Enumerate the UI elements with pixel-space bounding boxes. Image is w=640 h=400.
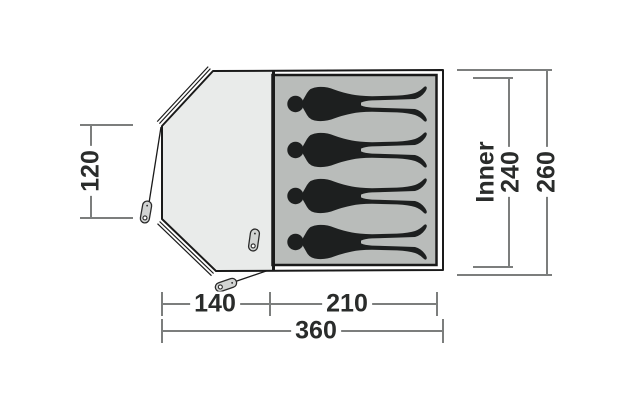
dim-label-inner: Inner (474, 137, 499, 206)
dim-label-240: 240 (499, 147, 524, 197)
dim-360-tick-left (161, 319, 163, 343)
dim-360-tick-right (442, 319, 444, 343)
dim-label-260: 260 (535, 147, 560, 197)
dim-label-120: 120 (79, 146, 104, 196)
dim-label-210: 210 (322, 292, 372, 317)
dim-240-tick-bottom (473, 266, 513, 268)
peg-icon-left (140, 200, 153, 223)
dim-120-tick-top (80, 124, 133, 126)
guy-line-left (149, 127, 161, 203)
dim-210-tick-right (436, 292, 438, 316)
dim-label-360: 360 (291, 319, 341, 344)
dim-140-tick-left (161, 292, 163, 316)
dim-120-tick-bottom (80, 217, 133, 219)
dim-140-210-tick-middle (269, 292, 271, 316)
dim-260-tick-top (457, 69, 552, 71)
tent-dimension-diagram: 120 Inner 240 260 140 210 360 (0, 0, 640, 400)
dim-240-tick-top (473, 77, 513, 79)
dim-label-140: 140 (190, 292, 240, 317)
dim-260-tick-bottom (457, 274, 552, 276)
